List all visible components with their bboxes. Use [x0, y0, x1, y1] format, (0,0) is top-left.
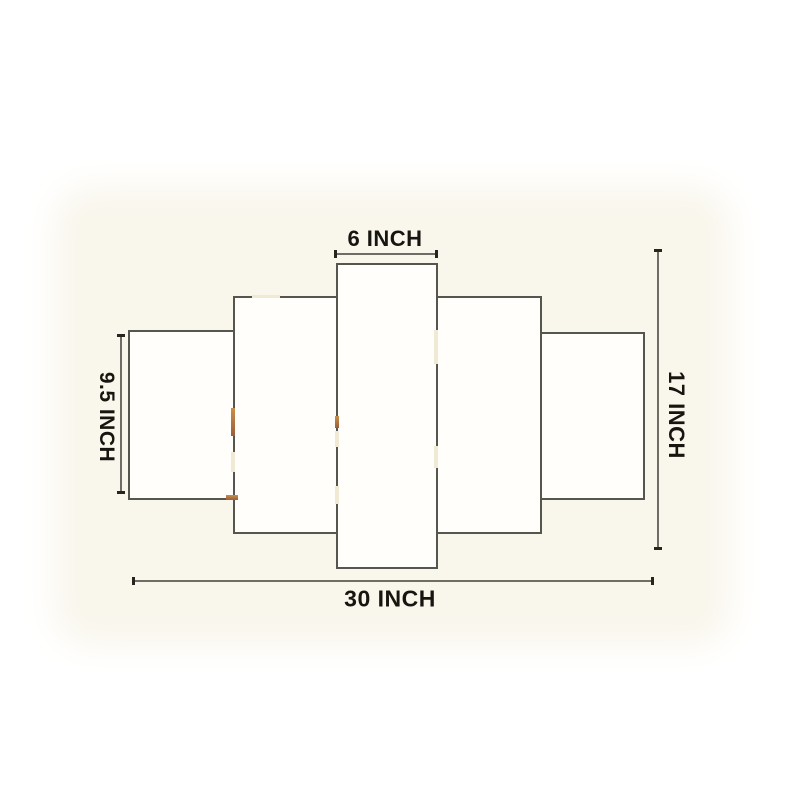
dimension-label-total-width: 30 INCH [344, 586, 436, 613]
dimension-label-side-height: 9.5 INCH [94, 372, 118, 462]
canvas-panel-4 [436, 296, 542, 534]
dimension-label-center-width: 6 INCH [347, 226, 422, 252]
dimension-line-total-width [133, 580, 653, 582]
canvas-panel-3-center [336, 263, 438, 569]
dimension-line-side-height [120, 335, 122, 493]
canvas-panel-1 [128, 330, 235, 500]
product-dimension-diagram: 6 INCH 30 INCH 9.5 INCH 17 INCH [0, 0, 800, 800]
dimension-line-center-width [335, 253, 437, 255]
dimension-label-total-height: 17 INCH [663, 371, 689, 459]
canvas-panel-5 [539, 332, 645, 500]
dimension-line-total-height [657, 250, 659, 549]
canvas-panel-2 [233, 296, 338, 534]
